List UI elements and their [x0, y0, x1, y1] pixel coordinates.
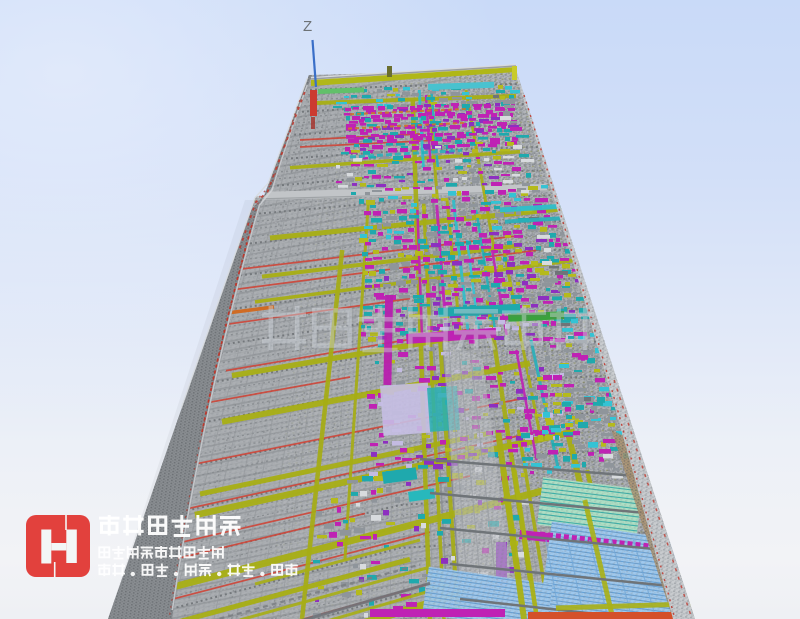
svg-text:Z: Z	[303, 18, 312, 35]
